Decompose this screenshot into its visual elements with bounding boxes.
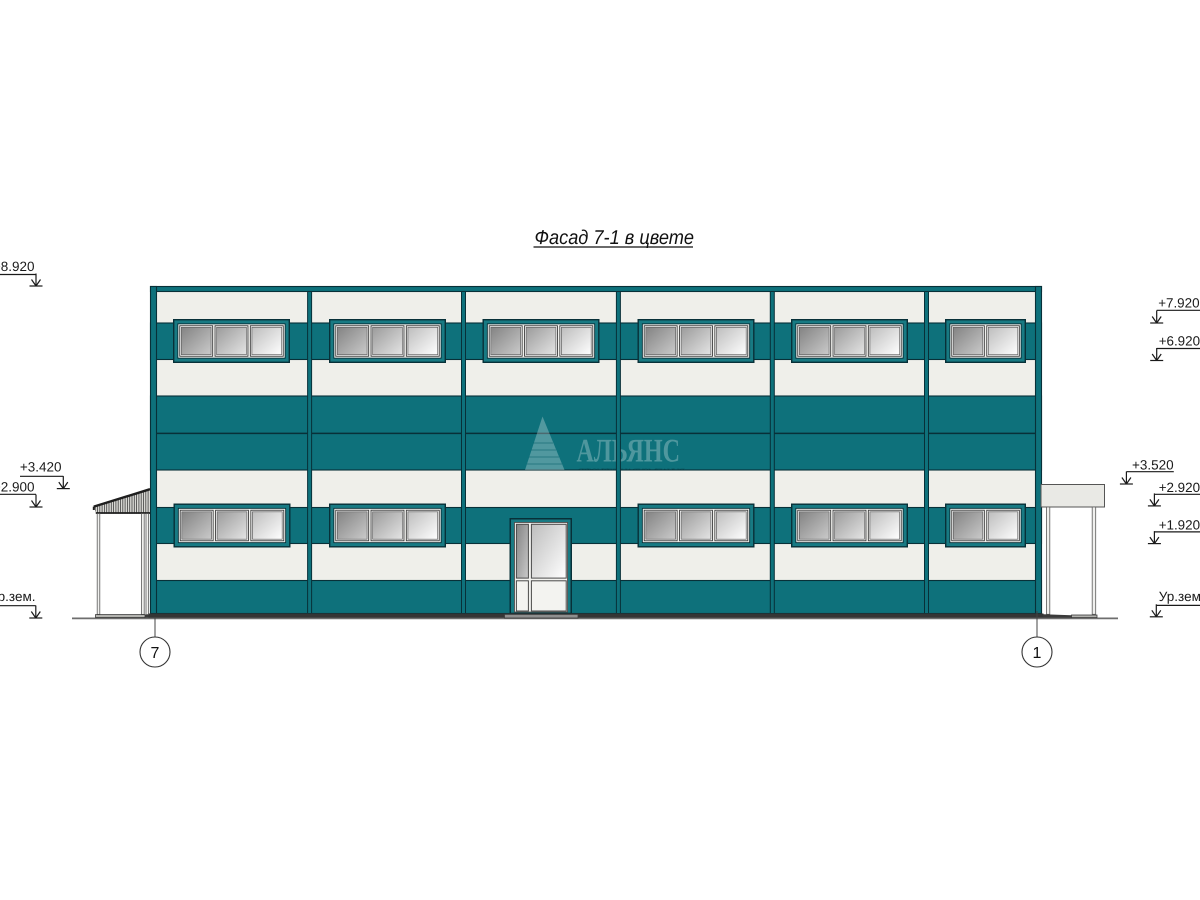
svg-text:+6.920: +6.920 — [1159, 334, 1200, 349]
svg-text:Ур.зем.: Ур.зем. — [0, 589, 36, 604]
svg-text:+2.900: +2.900 — [0, 479, 35, 494]
svg-text:Ур.зем.: Ур.зем. — [1159, 589, 1200, 604]
svg-text:+8.920: +8.920 — [0, 259, 35, 274]
svg-text:7: 7 — [151, 645, 160, 662]
svg-text:+1.920: +1.920 — [1159, 518, 1200, 533]
svg-text:+3.420: +3.420 — [20, 460, 62, 475]
svg-text:+2.920: +2.920 — [1159, 480, 1200, 495]
svg-text:+3.520: +3.520 — [1132, 457, 1174, 472]
svg-text:АЛЬЯНС: АЛЬЯНС — [577, 434, 681, 470]
svg-text:Фасад 7-1 в цвете: Фасад 7-1 в цвете — [535, 227, 695, 249]
svg-text:1: 1 — [1033, 645, 1042, 662]
svg-text:+7.920: +7.920 — [1158, 296, 1199, 311]
